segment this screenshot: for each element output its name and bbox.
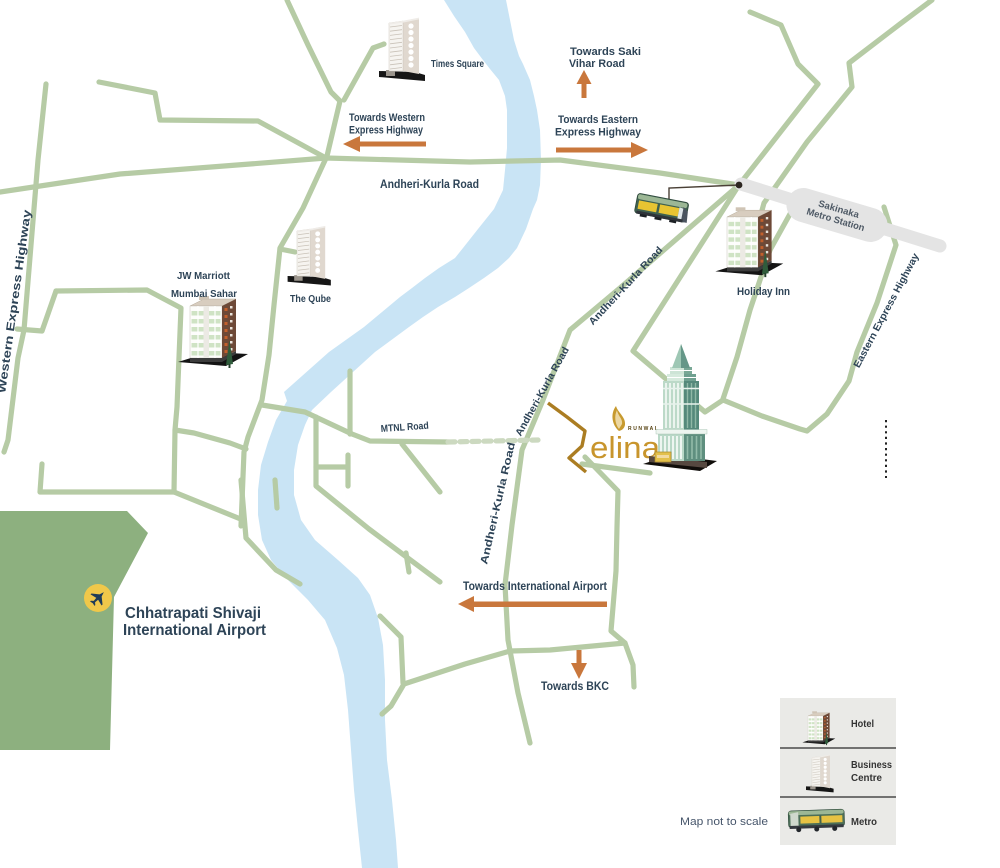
svg-text:Chhatrapati Shivaji: Chhatrapati Shivaji <box>125 605 261 622</box>
svg-text:Holiday Inn: Holiday Inn <box>737 286 790 298</box>
svg-text:Hotel: Hotel <box>851 719 874 730</box>
svg-text:Express Highway: Express Highway <box>349 125 424 137</box>
svg-text:Towards Saki: Towards Saki <box>570 46 641 58</box>
svg-text:International Airport: International Airport <box>123 622 266 639</box>
svg-text:Centre: Centre <box>851 773 882 784</box>
svg-text:Andheri-Kurla Road: Andheri-Kurla Road <box>380 179 479 191</box>
svg-text:Towards Eastern: Towards Eastern <box>558 114 638 126</box>
svg-text:Metro: Metro <box>851 817 877 828</box>
svg-text:Business: Business <box>851 760 892 771</box>
svg-text:Towards Western: Towards Western <box>349 112 425 124</box>
svg-text:Vihar Road: Vihar Road <box>569 58 625 70</box>
svg-text:Express Highway: Express Highway <box>555 127 642 139</box>
svg-text:Towards International Airport: Towards International Airport <box>463 581 607 593</box>
svg-text:Map not to scale: Map not to scale <box>680 816 768 828</box>
svg-text:Mumbai Sahar: Mumbai Sahar <box>171 288 237 300</box>
svg-text:The Qube: The Qube <box>290 293 331 305</box>
svg-text:Towards BKC: Towards BKC <box>541 681 609 693</box>
svg-text:JW Marriott: JW Marriott <box>177 270 230 282</box>
svg-text:Times Square: Times Square <box>431 58 484 70</box>
